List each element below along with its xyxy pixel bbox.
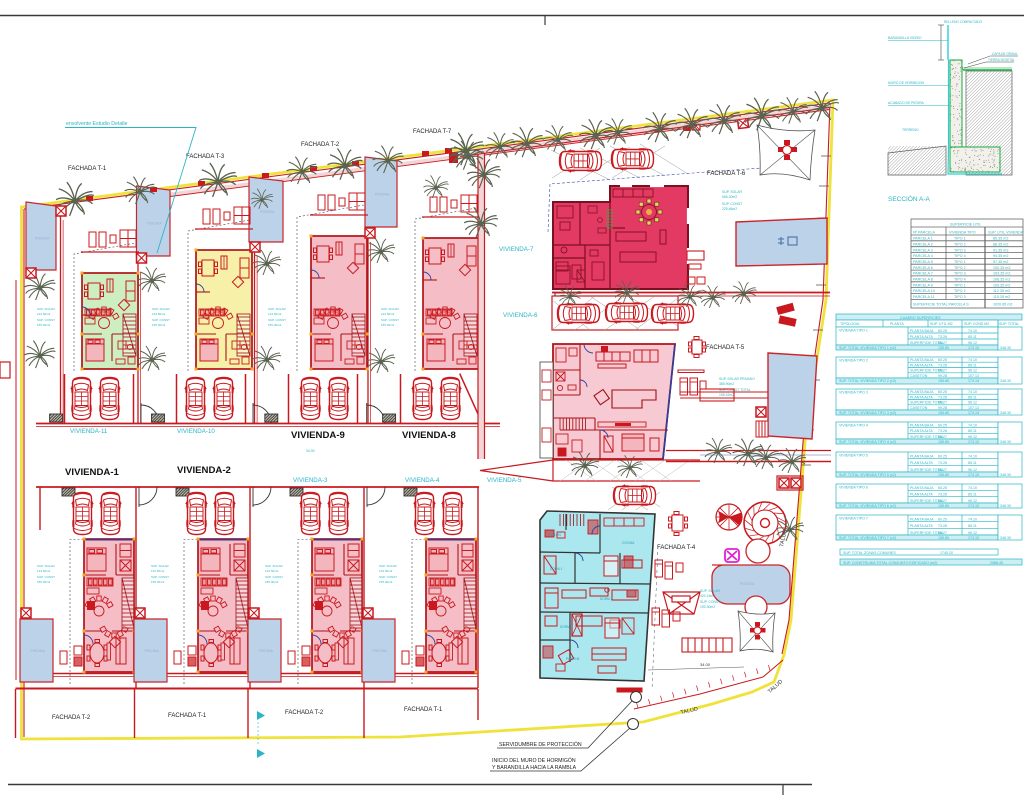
svg-text:73.26: 73.26 xyxy=(938,363,947,367)
svg-text:106.35 m2: 106.35 m2 xyxy=(993,278,1010,282)
svg-text:174.15: 174.15 xyxy=(968,504,979,508)
svg-text:RELLENO COMPACTADO: RELLENO COMPACTADO xyxy=(944,20,983,24)
svg-text:155.80: 155.80 xyxy=(938,504,949,508)
svg-text:60.25: 60.25 xyxy=(938,455,947,459)
svg-text:CASETON: CASETON xyxy=(910,406,928,410)
svg-text:74.10: 74.10 xyxy=(968,329,977,333)
svg-text:VIVIENDA-4: VIVIENDA-4 xyxy=(405,477,440,484)
svg-text:115.35 m2: 115.35 m2 xyxy=(993,295,1010,299)
svg-text:134.50m2: 134.50m2 xyxy=(379,569,393,573)
svg-text:86.27: 86.27 xyxy=(938,499,947,503)
svg-text:SUP. SOLAR: SUP. SOLAR xyxy=(700,589,720,593)
svg-text:DORM 2: DORM 2 xyxy=(600,597,613,601)
svg-text:134.50m2: 134.50m2 xyxy=(268,312,282,316)
svg-text:VIVIENDA-10: VIVIENDA-10 xyxy=(177,428,215,435)
svg-text:TIPO 2: TIPO 2 xyxy=(954,266,966,270)
svg-text:385.90m2: 385.90m2 xyxy=(719,382,734,386)
svg-text:TIPOLOGIA: TIPOLOGIA xyxy=(840,322,860,326)
svg-text:134.50m2: 134.50m2 xyxy=(265,569,279,573)
svg-text:SUP. CONST: SUP. CONST xyxy=(152,318,170,322)
svg-text:SUP. CONST: SUP. CONST xyxy=(379,575,397,579)
svg-text:348.30: 348.30 xyxy=(1000,346,1011,350)
svg-text:86.27: 86.27 xyxy=(938,435,947,439)
svg-text:VIVIENDA TIPO 4: VIVIENDA TIPO 4 xyxy=(839,423,868,427)
svg-text:TERRENO: TERRENO xyxy=(902,128,919,132)
svg-text:PISCINA: PISCINA xyxy=(147,222,162,226)
svg-text:CASETON: CASETON xyxy=(910,374,928,378)
svg-text:60.25: 60.25 xyxy=(938,424,947,428)
svg-text:99.28: 99.28 xyxy=(938,406,947,410)
svg-text:103.35 m2: 103.35 m2 xyxy=(993,272,1010,276)
svg-text:PLANTA BAJA: PLANTA BAJA xyxy=(910,455,934,459)
svg-text:VIVIENDA-8: VIVIENDA-8 xyxy=(402,430,457,441)
svg-text:SUP. UTIL VIVIENDA: SUP. UTIL VIVIENDA xyxy=(988,231,1024,235)
svg-text:96.12: 96.12 xyxy=(968,499,977,503)
svg-text:VIVIENDA-5: VIVIENDA-5 xyxy=(487,477,522,484)
svg-text:155.80: 155.80 xyxy=(938,379,949,383)
svg-text:VIVIENDA-3: VIVIENDA-3 xyxy=(293,477,328,484)
svg-text:1745.20: 1745.20 xyxy=(940,551,953,555)
svg-text:SUP. CONST: SUP. CONST xyxy=(265,575,283,579)
svg-text:PARCELA 3: PARCELA 3 xyxy=(913,248,933,252)
svg-text:73.26: 73.26 xyxy=(938,335,947,339)
svg-text:DORM 1: DORM 1 xyxy=(550,567,563,571)
svg-text:SUP. TOTAL: SUP. TOTAL xyxy=(999,322,1019,326)
svg-text:SUPERFICIE TOTAL PARCELA S: SUPERFICIE TOTAL PARCELA S xyxy=(913,303,969,307)
svg-text:174.15: 174.15 xyxy=(968,346,979,350)
svg-text:86.27: 86.27 xyxy=(938,369,947,373)
svg-text:FACHADA T-4: FACHADA T-4 xyxy=(657,545,696,551)
svg-text:VIVIENDA-9: VIVIENDA-9 xyxy=(291,430,345,441)
svg-text:VIVIENDA-7: VIVIENDA-7 xyxy=(499,246,534,253)
svg-text:155.80: 155.80 xyxy=(938,536,949,540)
svg-text:155.80: 155.80 xyxy=(938,473,949,477)
svg-text:CUADRO SUPERFICIES: CUADRO SUPERFICIES xyxy=(900,316,941,320)
svg-text:94.35 m2: 94.35 m2 xyxy=(993,254,1008,258)
svg-text:PISCINA: PISCINA xyxy=(145,649,160,653)
svg-text:73.26: 73.26 xyxy=(938,395,947,399)
svg-text:348.30: 348.30 xyxy=(1000,440,1011,444)
svg-text:88.35 m2: 88.35 m2 xyxy=(993,242,1008,246)
svg-text:TIERRA VEGETAL: TIERRA VEGETAL xyxy=(988,58,1015,62)
svg-text:96.12: 96.12 xyxy=(968,369,977,373)
svg-text:348.30: 348.30 xyxy=(1000,504,1011,508)
svg-text:134.50m2: 134.50m2 xyxy=(151,569,165,573)
svg-text:96.12: 96.12 xyxy=(968,401,977,405)
svg-text:155.30m2: 155.30m2 xyxy=(265,580,279,584)
svg-text:348.30: 348.30 xyxy=(1000,536,1011,540)
svg-text:PARCELA 10: PARCELA 10 xyxy=(913,289,935,293)
svg-text:PISCINA: PISCINA xyxy=(740,582,755,586)
svg-text:TIPO 3: TIPO 3 xyxy=(954,272,966,276)
svg-text:PARCELA 8: PARCELA 8 xyxy=(913,278,933,282)
svg-text:SUP. SOLAR: SUP. SOLAR xyxy=(37,307,55,311)
svg-text:FACHADA T-6: FACHADA T-6 xyxy=(707,171,746,177)
svg-text:SUP. SOLAR: SUP. SOLAR xyxy=(381,307,399,311)
svg-text:PARCELA 1: PARCELA 1 xyxy=(913,237,933,241)
svg-text:155.30m2: 155.30m2 xyxy=(151,580,165,584)
svg-text:PARCELA 7: PARCELA 7 xyxy=(913,272,933,276)
svg-text:VIVIENDA-11: VIVIENDA-11 xyxy=(70,428,108,435)
svg-text:348.30: 348.30 xyxy=(1000,411,1011,415)
svg-text:PARCELA 4: PARCELA 4 xyxy=(913,254,933,258)
svg-text:PLANTA BAJA: PLANTA BAJA xyxy=(910,424,934,428)
svg-text:134.50m2: 134.50m2 xyxy=(37,569,51,573)
svg-text:225.46m2: 225.46m2 xyxy=(722,207,737,211)
svg-text:SUP. TOTAL VIVIENDA TIPO 1 (x2: SUP. TOTAL VIVIENDA TIPO 1 (x2) xyxy=(839,346,896,350)
svg-text:SUP. CONST: SUP. CONST xyxy=(381,318,399,322)
svg-text:PLANTA BAJA: PLANTA BAJA xyxy=(910,486,934,490)
svg-text:SUP. CONSTRUIDA TOTAL CONJUNTO: SUP. CONSTRUIDA TOTAL CONJUNTO EDIFICADO… xyxy=(843,561,937,565)
svg-text:74.10: 74.10 xyxy=(968,390,977,394)
svg-text:348.30: 348.30 xyxy=(1000,379,1011,383)
svg-text:TIPO 1: TIPO 1 xyxy=(954,237,966,241)
svg-text:134.50m2: 134.50m2 xyxy=(152,312,166,316)
svg-text:85.11: 85.11 xyxy=(968,461,977,465)
svg-text:PLANTA ALTA: PLANTA ALTA xyxy=(910,524,933,528)
svg-text:74.10: 74.10 xyxy=(968,358,977,362)
svg-text:PISCINA: PISCINA xyxy=(35,237,50,241)
svg-text:109.35 m2: 109.35 m2 xyxy=(993,283,1010,287)
svg-text:155.30m2: 155.30m2 xyxy=(152,323,166,327)
svg-text:Y BARANDILLA HACIA LA RAMBLA: Y BARANDILLA HACIA LA RAMBLA xyxy=(492,765,577,771)
svg-text:174.15: 174.15 xyxy=(968,379,979,383)
svg-text:PARCELA 6: PARCELA 6 xyxy=(913,266,933,270)
svg-text:CAPA DE GRAVA: CAPA DE GRAVA xyxy=(992,52,1018,56)
svg-text:155.30m2: 155.30m2 xyxy=(268,323,282,327)
svg-text:565.20m2: 565.20m2 xyxy=(722,195,737,199)
svg-text:SUP. UTIL M2: SUP. UTIL M2 xyxy=(930,322,953,326)
svg-text:VIVIENDA-2: VIVIENDA-2 xyxy=(177,465,231,476)
svg-text:ACABADO DE PIEDRA: ACABADO DE PIEDRA xyxy=(888,101,925,105)
svg-text:INICIO DEL MURO DE HORMIGÓN: INICIO DEL MURO DE HORMIGÓN xyxy=(492,757,576,764)
svg-text:VIVIENDA TIPO 6: VIVIENDA TIPO 6 xyxy=(839,485,868,489)
svg-text:85.11: 85.11 xyxy=(968,429,977,433)
svg-text:73.26: 73.26 xyxy=(938,429,947,433)
svg-text:74.10: 74.10 xyxy=(968,486,977,490)
svg-text:VIVIENDA-6: VIVIENDA-6 xyxy=(503,312,538,319)
svg-text:85.11: 85.11 xyxy=(968,335,977,339)
svg-text:VIVIENDA TIPO 7: VIVIENDA TIPO 7 xyxy=(839,516,868,520)
svg-text:155.30m2: 155.30m2 xyxy=(379,580,393,584)
svg-text:SUP. CONST: SUP. CONST xyxy=(700,600,720,604)
svg-text:PARCELA 2: PARCELA 2 xyxy=(913,242,933,246)
svg-text:FACHADA T-3: FACHADA T-3 xyxy=(186,154,225,160)
svg-text:SUP. CONST: SUP. CONST xyxy=(37,318,55,322)
svg-text:155.80: 155.80 xyxy=(938,411,949,415)
svg-text:PLANTA ALTA: PLANTA ALTA xyxy=(910,429,933,433)
svg-text:155.80: 155.80 xyxy=(938,440,949,444)
svg-text:PLANTA ALTA: PLANTA ALTA xyxy=(910,335,933,339)
svg-text:174.15: 174.15 xyxy=(968,411,979,415)
svg-text:155.30m2: 155.30m2 xyxy=(37,323,51,327)
svg-text:PARCELA 9: PARCELA 9 xyxy=(913,283,933,287)
svg-text:73.26: 73.26 xyxy=(938,524,947,528)
svg-text:174.15: 174.15 xyxy=(968,440,979,444)
svg-text:96.12: 96.12 xyxy=(968,468,977,472)
svg-text:SUP. SOLAR: SUP. SOLAR xyxy=(152,307,170,311)
svg-text:155.80: 155.80 xyxy=(938,346,949,350)
svg-text:107.13: 107.13 xyxy=(968,374,979,378)
svg-text:PLANTA ALTA: PLANTA ALTA xyxy=(910,363,933,367)
svg-text:SUP. CONST: SUP. CONST xyxy=(268,318,286,322)
svg-text:85.11: 85.11 xyxy=(968,395,977,399)
svg-text:60.25: 60.25 xyxy=(938,486,947,490)
svg-text:SUP. TOTAL VIVIENDA TIPO 5 (x2: SUP. TOTAL VIVIENDA TIPO 5 (x2) xyxy=(839,473,896,477)
svg-text:74.10: 74.10 xyxy=(968,455,977,459)
svg-text:SUP. SOLAR: SUP. SOLAR xyxy=(265,564,283,568)
svg-text:96.12: 96.12 xyxy=(968,435,977,439)
svg-text:86.27: 86.27 xyxy=(938,341,947,345)
svg-text:SUP. TOTAL VIVIENDA TIPO 2 (x2: SUP. TOTAL VIVIENDA TIPO 2 (x2) xyxy=(839,379,896,383)
svg-text:SUP. SOLAR: SUP. SOLAR xyxy=(722,190,742,194)
svg-text:FACHADA T-2: FACHADA T-2 xyxy=(301,142,340,148)
svg-text:97.35 m2: 97.35 m2 xyxy=(993,260,1008,264)
svg-text:60.25: 60.25 xyxy=(938,358,947,362)
svg-text:86.27: 86.27 xyxy=(938,468,947,472)
svg-text:34.00: 34.00 xyxy=(306,449,315,453)
svg-text:34.00: 34.00 xyxy=(700,662,711,667)
svg-text:174.15: 174.15 xyxy=(968,473,979,477)
svg-text:TIPO 2: TIPO 2 xyxy=(954,289,966,293)
svg-text:MURO DE HORMIGON: MURO DE HORMIGON xyxy=(888,81,925,85)
svg-text:74.10: 74.10 xyxy=(968,518,977,522)
svg-text:85.35 m2: 85.35 m2 xyxy=(993,237,1008,241)
svg-text:PORCHE: PORCHE xyxy=(566,657,580,661)
svg-text:SUP. CONST: SUP. CONST xyxy=(37,575,55,579)
svg-text:PISCINA: PISCINA xyxy=(31,649,46,653)
svg-text:PISCINA: PISCINA xyxy=(259,649,274,653)
svg-text:107.13: 107.13 xyxy=(968,406,979,410)
svg-text:FACHADA T-1: FACHADA T-1 xyxy=(68,166,107,172)
svg-text:PARCELA 11: PARCELA 11 xyxy=(913,295,935,299)
svg-text:99.28: 99.28 xyxy=(938,374,947,378)
svg-text:PISCINA: PISCINA xyxy=(373,649,388,653)
svg-text:60.25: 60.25 xyxy=(938,518,947,522)
svg-text:BARANDILLA VIDRIO: BARANDILLA VIDRIO xyxy=(888,36,922,40)
svg-text:DORM 3: DORM 3 xyxy=(560,625,573,629)
svg-text:SECCIÓN A-A: SECCIÓN A-A xyxy=(888,194,931,203)
svg-text:SUP. SOLAR: SUP. SOLAR xyxy=(151,564,169,568)
svg-text:SUP. TOTAL VIVIENDA TIPO 7 (x2: SUP. TOTAL VIVIENDA TIPO 7 (x2) xyxy=(839,536,896,540)
svg-text:85.11: 85.11 xyxy=(968,493,977,497)
svg-text:86.27: 86.27 xyxy=(938,531,947,535)
svg-text:85.11: 85.11 xyxy=(968,363,977,367)
svg-text:FACHADA T-5: FACHADA T-5 xyxy=(706,345,745,351)
svg-text:SUP. SOLAR: SUP. SOLAR xyxy=(37,564,55,568)
svg-text:TIPO 1: TIPO 1 xyxy=(954,260,966,264)
svg-text:86.27: 86.27 xyxy=(938,401,947,405)
svg-text:73.26: 73.26 xyxy=(938,461,947,465)
svg-text:SERVIDUMBRE DE PROTECCIÓN: SERVIDUMBRE DE PROTECCIÓN xyxy=(499,741,582,748)
svg-text:VIVIENDA TIPO: VIVIENDA TIPO xyxy=(949,231,976,235)
svg-text:PLANTA ALTA: PLANTA ALTA xyxy=(910,493,933,497)
svg-text:134.50m2: 134.50m2 xyxy=(381,312,395,316)
svg-text:100.35 m2: 100.35 m2 xyxy=(993,266,1010,270)
svg-text:VIVIENDA TIPO 3: VIVIENDA TIPO 3 xyxy=(839,390,868,394)
svg-text:TIPO 2: TIPO 2 xyxy=(954,242,966,246)
svg-text:SUP. SOLAR: SUP. SOLAR xyxy=(379,564,397,568)
svg-text:SUP. TOTAL VIVIENDA TIPO 3 (x2: SUP. TOTAL VIVIENDA TIPO 3 (x2) xyxy=(839,411,896,415)
svg-text:TIPO 1: TIPO 1 xyxy=(954,283,966,287)
svg-text:Nº PARCELA: Nº PARCELA xyxy=(913,231,936,235)
svg-text:60.25: 60.25 xyxy=(938,390,947,394)
svg-text:190.30m2: 190.30m2 xyxy=(700,605,715,609)
svg-text:PISCINA: PISCINA xyxy=(375,193,390,197)
svg-text:FACHADA T-1: FACHADA T-1 xyxy=(168,713,207,719)
svg-text:FACHADA T-2: FACHADA T-2 xyxy=(285,710,324,716)
svg-text:96.12: 96.12 xyxy=(968,531,977,535)
svg-text:FACHADA T-7: FACHADA T-7 xyxy=(413,129,452,135)
svg-text:TIPO 4: TIPO 4 xyxy=(954,278,966,282)
svg-text:PLANTA BAJA: PLANTA BAJA xyxy=(910,390,934,394)
svg-text:PARCELA 5: PARCELA 5 xyxy=(913,260,933,264)
svg-text:SUP. CONS M2: SUP. CONS M2 xyxy=(964,322,989,326)
svg-text:VIVIENDA TIPO 5: VIVIENDA TIPO 5 xyxy=(839,453,868,457)
svg-text:348.30: 348.30 xyxy=(1000,473,1011,477)
svg-text:FACHADA T-1: FACHADA T-1 xyxy=(404,707,443,713)
svg-text:SALON: SALON xyxy=(550,533,562,537)
svg-text:PLANTA BAJA: PLANTA BAJA xyxy=(910,329,934,333)
svg-text:73.26: 73.26 xyxy=(938,493,947,497)
svg-text:1020.85 m2: 1020.85 m2 xyxy=(993,303,1012,307)
svg-text:SUP. TOTAL ZONAS COMUNES: SUP. TOTAL ZONAS COMUNES xyxy=(843,551,896,555)
svg-text:PLANTA BAJA: PLANTA BAJA xyxy=(910,518,934,522)
svg-text:155.30m2: 155.30m2 xyxy=(381,323,395,327)
svg-text:PLANTA ALTA: PLANTA ALTA xyxy=(910,461,933,465)
svg-text:SUP. SOLAR PRIVADO: SUP. SOLAR PRIVADO xyxy=(719,377,755,381)
svg-text:VIVIENDA-1: VIVIENDA-1 xyxy=(65,467,120,478)
svg-text:SUP. CONST: SUP. CONST xyxy=(722,202,742,206)
svg-text:VIVIENDA TIPO 1: VIVIENDA TIPO 1 xyxy=(839,328,868,332)
svg-text:155.30m2: 155.30m2 xyxy=(37,580,51,584)
svg-text:TIPO 4: TIPO 4 xyxy=(954,254,966,258)
svg-text:COCINA: COCINA xyxy=(622,541,635,545)
svg-text:PLANTA ALTA: PLANTA ALTA xyxy=(910,395,933,399)
svg-text:420.15m2: 420.15m2 xyxy=(700,594,715,598)
svg-text:SUP. TOTAL VIVIENDA TIPO 4 (x2: SUP. TOTAL VIVIENDA TIPO 4 (x2) xyxy=(839,440,896,444)
svg-text:SUP. SOLAR: SUP. SOLAR xyxy=(268,307,286,311)
svg-text:PLANTA BAJA: PLANTA BAJA xyxy=(910,358,934,362)
svg-text:174.15: 174.15 xyxy=(968,536,979,540)
svg-text:112.35 m2: 112.35 m2 xyxy=(993,289,1010,293)
svg-text:PISCINA: PISCINA xyxy=(260,210,275,214)
svg-text:96.12: 96.12 xyxy=(968,341,977,345)
svg-text:91.35 m2: 91.35 m2 xyxy=(993,248,1008,252)
svg-text:195.42m2: 195.42m2 xyxy=(719,393,734,397)
svg-text:SUP. TOTAL VIVIENDA TIPO 6 (x2: SUP. TOTAL VIVIENDA TIPO 6 (x2) xyxy=(839,504,896,508)
svg-text:60.25: 60.25 xyxy=(938,329,947,333)
svg-text:VIVIENDA TIPO 2: VIVIENDA TIPO 2 xyxy=(839,358,868,362)
svg-text:PLANTA: PLANTA xyxy=(890,322,904,326)
svg-text:85.11: 85.11 xyxy=(968,524,977,528)
svg-text:SUP. CONST: SUP. CONST xyxy=(151,575,169,579)
svg-text:TIPO 3: TIPO 3 xyxy=(954,295,966,299)
svg-text:2588.45: 2588.45 xyxy=(990,561,1003,565)
svg-text:FACHADA T-2: FACHADA T-2 xyxy=(52,715,91,721)
svg-text:TIPO 3: TIPO 3 xyxy=(954,248,966,252)
svg-text:SUPERFICIE UTIL: SUPERFICIE UTIL xyxy=(950,223,981,227)
svg-text:74.10: 74.10 xyxy=(968,424,977,428)
svg-text:134.50m2: 134.50m2 xyxy=(37,312,51,316)
svg-text:envolvente Estudio Detalle: envolvente Estudio Detalle xyxy=(66,121,128,127)
